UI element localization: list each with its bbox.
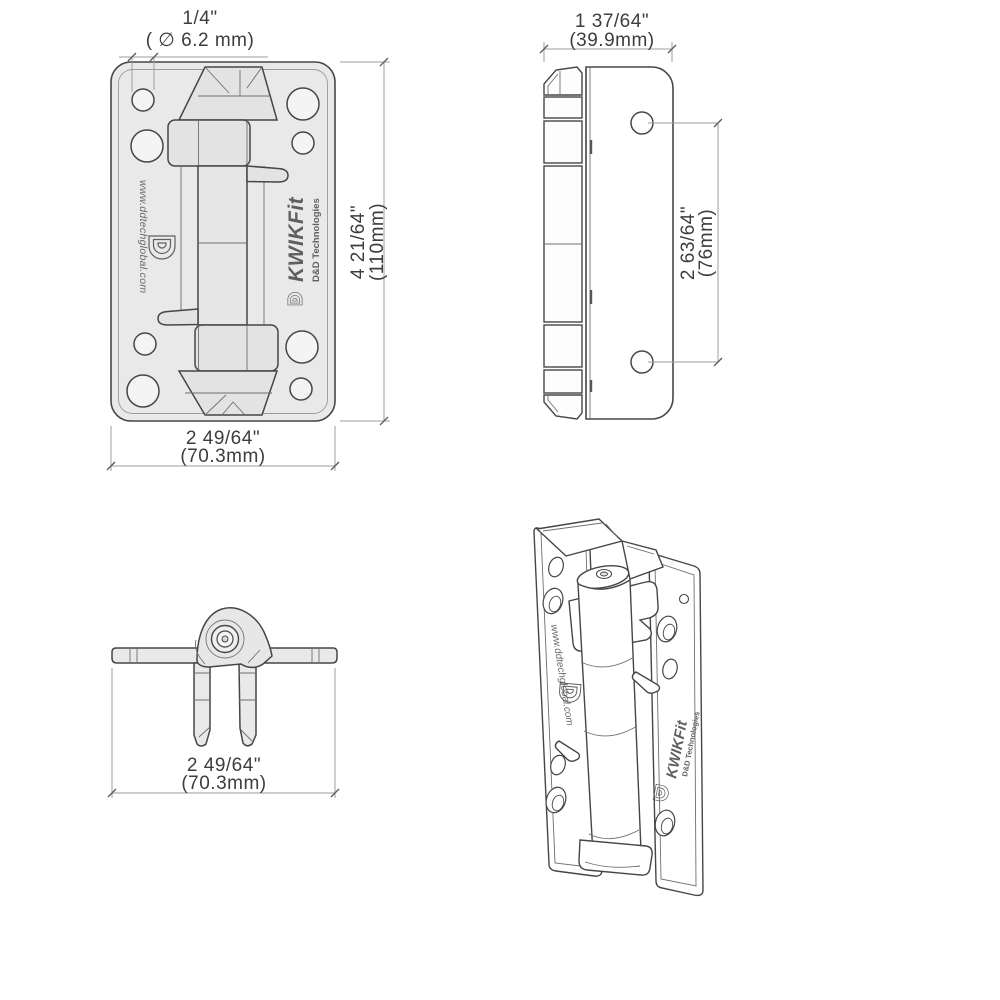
upper-finger-tab [247,166,288,182]
hole-large [127,375,159,407]
hole-small [290,378,312,400]
lower-hook [579,840,652,875]
side-view: 1 37/64" (39.9mm) 2 63/64" (76mm) [540,11,722,419]
product-name: KWIKFit [285,196,308,282]
dim-width-imperial: 1 37/64" [575,11,649,32]
hinge-drawing: KWIKFit D&D Technologies www.ddtechgloba… [0,0,1000,1000]
front-dim-height: 4 21/64" (110mm) [340,58,390,425]
side-knuckle-stack [544,67,582,419]
plate-profile [586,67,673,419]
pivot-pin [222,636,228,642]
folded-dim-width: 2 49/64" (70.3mm) [108,668,339,798]
hole-large [287,88,319,120]
front-dim-width: 2 49/64" (70.3mm) [107,426,339,471]
lower-finger-tab [158,309,198,325]
drawing-canvas: KWIKFit D&D Technologies www.ddtechgloba… [0,0,1000,1000]
folded-pivot [206,620,244,658]
hole-small [292,132,314,154]
isometric-view: www.ddtechglobal.com KWIKFit D&D Technol… [534,519,703,895]
dim-height-imperial: 4 21/64" [348,205,369,279]
dim-spacing-metric: (76mm) [696,209,717,277]
hole-small [134,333,156,355]
knuckle-segment [544,97,582,118]
front-view: KWIKFit D&D Technologies www.ddtechgloba… [107,8,390,471]
hole-large [286,331,318,363]
knuckle-chamfer-top [544,67,582,95]
barrel-body [198,166,247,325]
dim-height-metric: (110mm) [367,203,388,281]
dim-width-metric: (70.3mm) [181,773,266,794]
side-plate [586,67,673,419]
upper-knuckle-block [168,120,250,166]
website-url: www.ddtechglobal.com [137,180,149,293]
dim-hole-imperial: 1/4" [182,8,217,29]
dim-width-metric: (70.3mm) [180,446,265,467]
dim-width-metric: (39.9mm) [569,30,654,51]
side-dim-width: 1 37/64" (39.9mm) [540,11,676,62]
hole-small [132,89,154,111]
hole-tiny [680,595,689,604]
hole-large [131,130,163,162]
knuckle-chamfer-bottom [544,395,582,419]
knuckle-segment [544,370,582,393]
knuckle-segment [544,325,582,367]
pivot-screw-center [601,572,608,576]
knuckle-segment [544,121,582,163]
right-leg [239,663,256,746]
left-leg [194,663,210,746]
folded-view: 2 49/64" (70.3mm) [108,608,339,798]
lower-knuckle-block [195,325,278,371]
dim-hole-metric: ( ∅ 6.2 mm) [146,30,255,51]
company-name: D&D Technologies [311,198,322,282]
